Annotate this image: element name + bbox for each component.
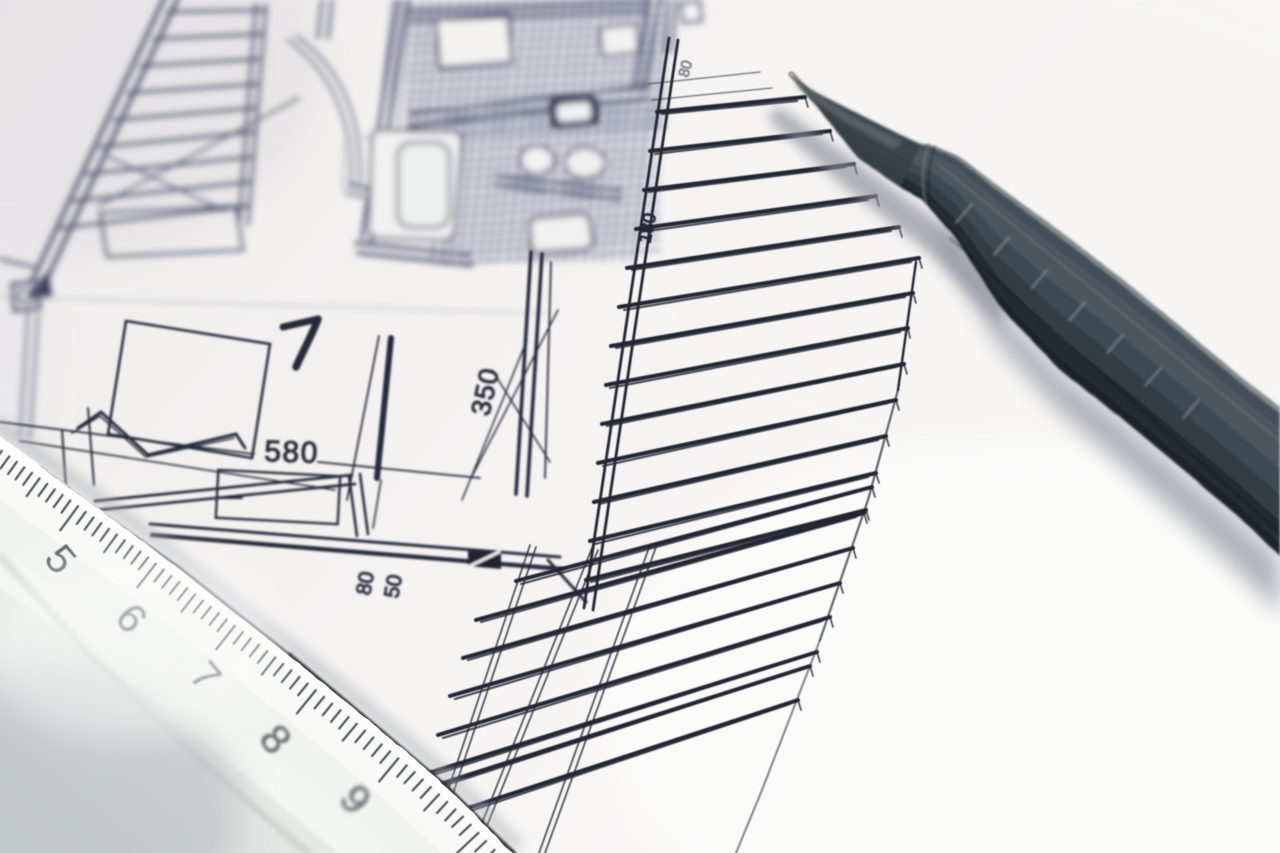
svg-text:580: 580 bbox=[264, 435, 320, 470]
svg-text:50: 50 bbox=[380, 573, 407, 600]
svg-text:80: 80 bbox=[352, 570, 379, 597]
